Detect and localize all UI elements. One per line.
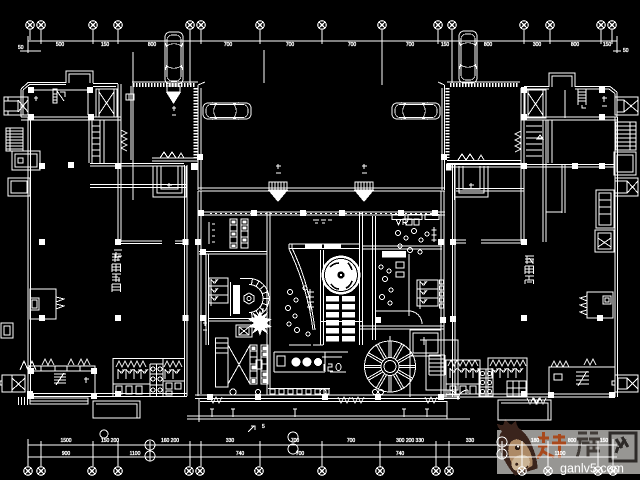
svg-text:740: 740	[396, 451, 405, 457]
svg-text:800: 800	[148, 42, 157, 48]
svg-text:900: 900	[62, 451, 71, 457]
svg-text:150 200: 150 200	[101, 438, 119, 444]
svg-text:300 200 330: 300 200 330	[396, 438, 424, 444]
svg-text:700: 700	[406, 42, 415, 48]
svg-text:ganlv5.com: ganlv5.com	[560, 462, 624, 476]
svg-text:50: 50	[623, 48, 629, 54]
svg-text:1500: 1500	[60, 438, 71, 444]
svg-text:300: 300	[533, 42, 542, 48]
svg-text:700: 700	[347, 438, 356, 444]
svg-text:50: 50	[18, 45, 24, 51]
svg-text:160 200: 160 200	[161, 438, 179, 444]
svg-text:1100: 1100	[130, 451, 141, 457]
svg-text:150: 150	[441, 42, 450, 48]
svg-text:700: 700	[224, 42, 233, 48]
svg-text:500: 500	[56, 42, 65, 48]
svg-text:800: 800	[484, 42, 493, 48]
svg-text:740: 740	[236, 451, 245, 457]
svg-text:1100: 1100	[555, 451, 566, 457]
svg-text:700: 700	[348, 42, 357, 48]
svg-text:800: 800	[568, 438, 577, 444]
svg-text:150: 150	[603, 42, 612, 48]
svg-text:800: 800	[571, 42, 580, 48]
svg-text:180: 180	[531, 438, 540, 444]
svg-text:330: 330	[466, 438, 475, 444]
svg-text:150: 150	[101, 42, 110, 48]
svg-text:330: 330	[226, 438, 235, 444]
svg-text:150: 150	[600, 438, 609, 444]
svg-text:5: 5	[262, 424, 265, 430]
svg-text:700: 700	[286, 42, 295, 48]
